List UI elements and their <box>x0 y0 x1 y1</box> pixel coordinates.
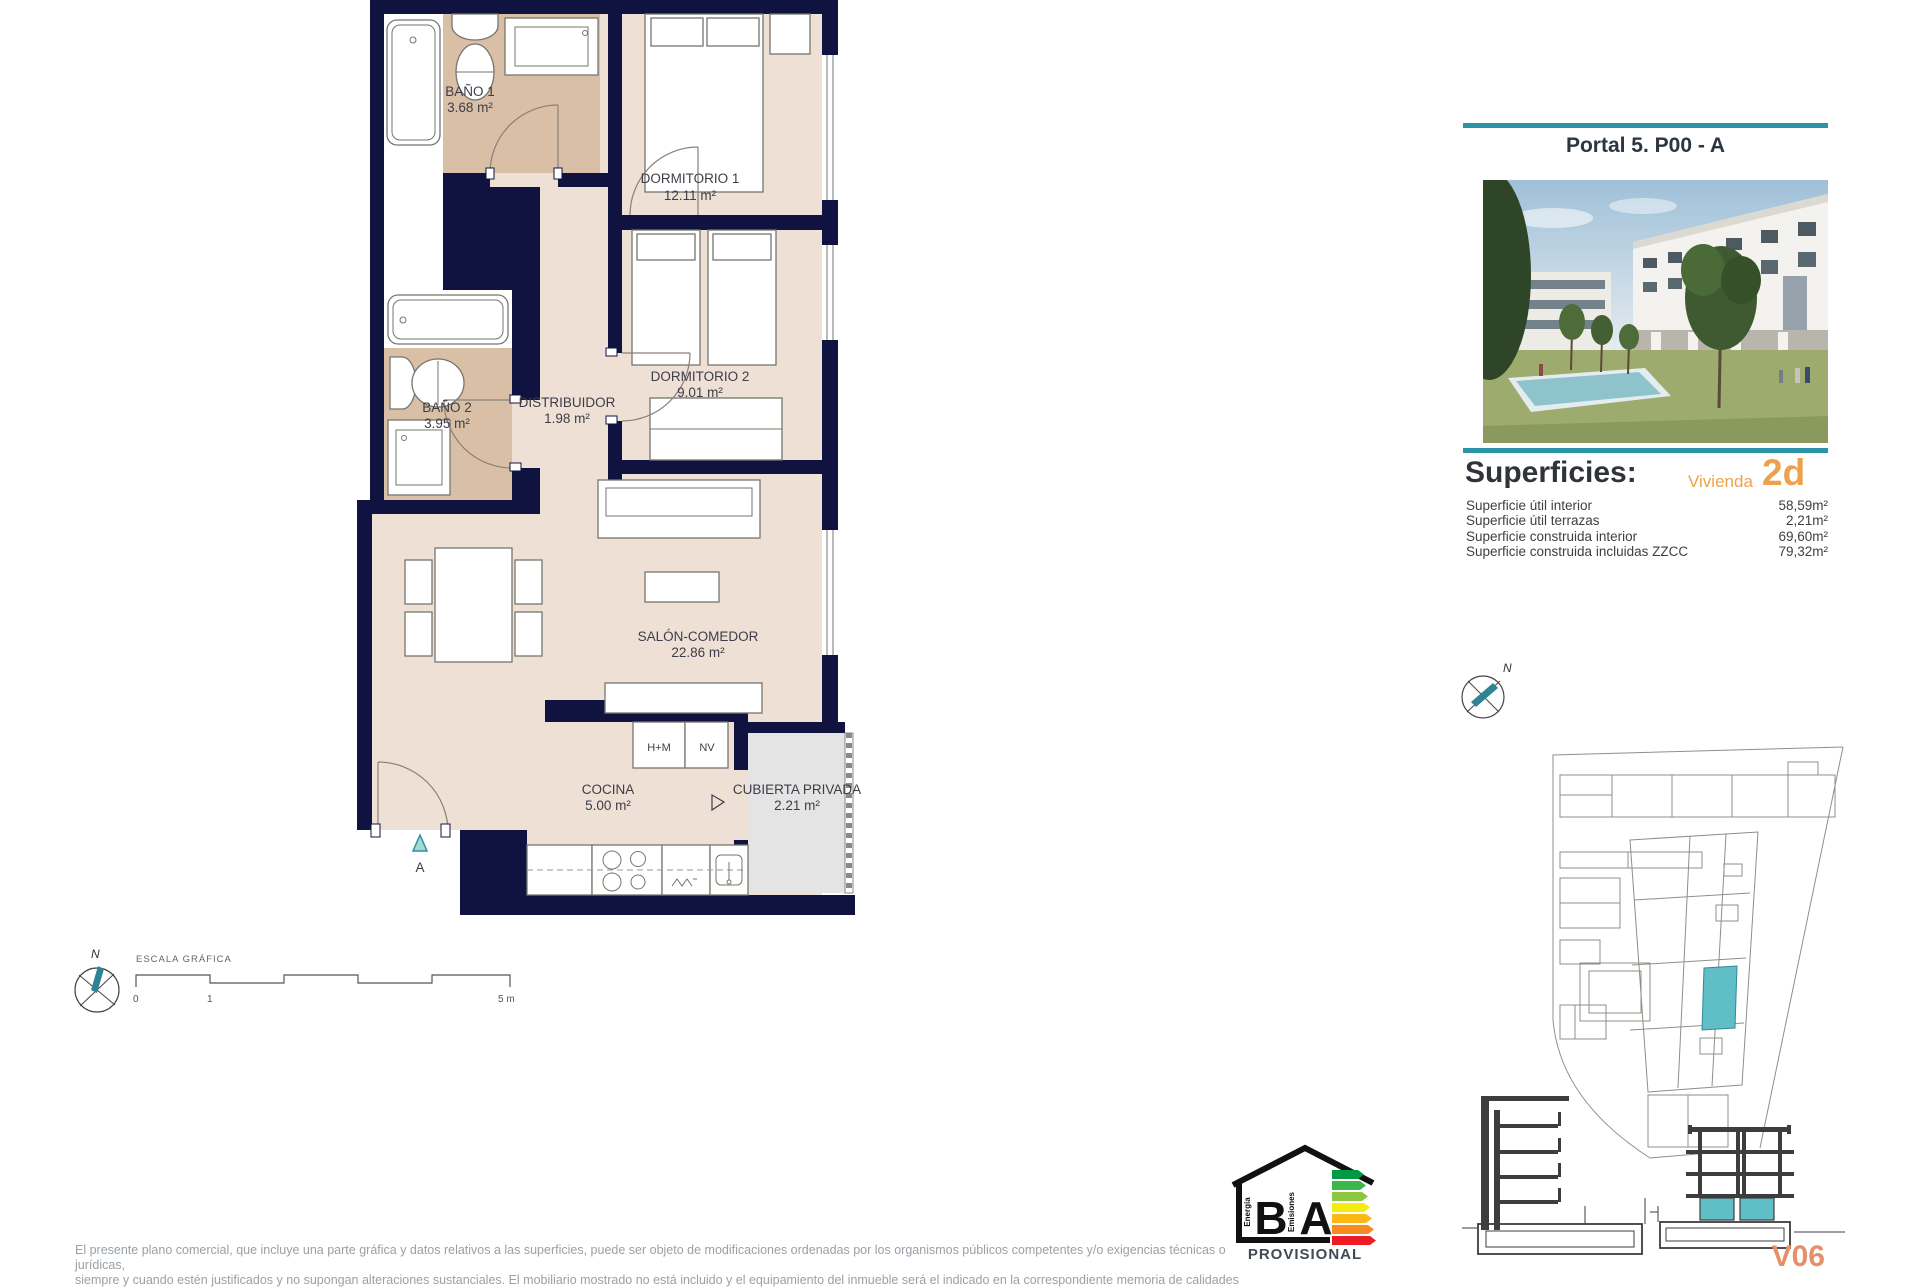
scale-bar <box>136 975 510 987</box>
superficies-row-value: 58,59m² <box>1778 498 1828 514</box>
section-highlighted-floor <box>1700 1198 1734 1220</box>
site-plan: N <box>1455 640 1855 1160</box>
wall-bath2-right-a <box>512 290 540 400</box>
wall-bath1-bottom-b <box>558 173 608 187</box>
section-right <box>1650 1125 1845 1248</box>
disclaimer-line1: El presente plano comercial, que incluye… <box>75 1243 1245 1273</box>
scale-tick-0: 0 <box>133 994 139 1005</box>
nightstand-dorm1 <box>770 14 810 54</box>
room-label-terrace: CUBIERTA PRIVADA <box>733 782 861 797</box>
vivienda-code: 2d <box>1762 452 1805 494</box>
vivienda-label: Vivienda <box>1688 472 1753 492</box>
plan-sheet: { "plan": { "rooms": [ {"name": "BAÑO 1"… <box>0 0 1920 1280</box>
superficies-row-label: Superficie útil interior <box>1466 498 1592 514</box>
wall-bath1-bottom-a <box>443 173 490 187</box>
superficies-row-label: Superficie construida incluidas ZZCC <box>1466 544 1688 560</box>
teal-rule-top <box>1463 123 1828 128</box>
energy-left-caption: Energía <box>1243 1197 1252 1227</box>
window-salon <box>822 530 838 655</box>
room-area-dorm1: 12.11 m² <box>664 188 717 203</box>
compass-north-label: N <box>91 947 100 961</box>
superficies-row: Superficie útil interior 58,59m² <box>1466 498 1828 514</box>
superficies-title: Superficies: <box>1465 456 1637 490</box>
site-highlighted-unit <box>1702 966 1737 1030</box>
wall-core-block <box>443 187 540 290</box>
site-compass-north: N <box>1503 661 1512 675</box>
room-label-dorm2: DORMITORIO 2 <box>651 369 750 384</box>
room-label-hall: DISTRIBUIDOR <box>519 395 616 410</box>
sink-1 <box>505 18 598 75</box>
wall-left-lower <box>357 505 372 830</box>
wall-terrace-top <box>748 722 845 733</box>
room-label-cocina: COCINA <box>582 782 635 797</box>
unit-label-nv: NV <box>699 742 715 754</box>
sofa <box>598 480 760 538</box>
room-label-dorm1: DORMITORIO 1 <box>641 171 740 186</box>
wall-top <box>372 0 838 14</box>
room-label-bath1: BAÑO 1 <box>445 84 495 99</box>
superficies-row-value: 2,21m² <box>1786 513 1828 529</box>
tv-sideboard <box>605 683 762 713</box>
room-area-dorm2: 9.01 m² <box>677 385 723 400</box>
disclaimer: El presente plano comercial, que incluye… <box>75 1243 1245 1288</box>
room-label-salon: SALÓN-COMEDOR <box>638 629 759 644</box>
version-code: V06 <box>1700 1240 1825 1274</box>
superficies-row-value: 79,32m² <box>1778 544 1828 560</box>
wall-dorm1-dorm2 <box>622 215 822 230</box>
room-area-bath2: 3.95 m² <box>424 416 470 431</box>
scale-tick-1: 1 <box>207 994 213 1005</box>
wall-bath2-bottom <box>357 500 540 514</box>
superficies-row: Superficie útil terrazas 2,21m² <box>1466 513 1828 529</box>
superficies-row-label: Superficie útil terrazas <box>1466 513 1600 529</box>
wall-terrace-left-a <box>734 722 748 770</box>
entrance-label: A <box>415 860 424 875</box>
scale-bar-title: ESCALA GRÁFICA <box>136 954 232 965</box>
kitchen-counter <box>527 845 748 895</box>
wall-hall-divider-a <box>608 14 622 353</box>
room-area-hall: 1.98 m² <box>544 411 590 426</box>
room-area-bath1: 3.68 m² <box>447 100 493 115</box>
room-area-terrace: 2.21 m² <box>774 798 820 813</box>
window-dorm1 <box>822 55 838 200</box>
scale-bar-group: ESCALA GRÁFICA 0 1 5 m N <box>60 940 580 1015</box>
disclaimer-line2: siempre y cuando estén justificados y no… <box>75 1273 1245 1288</box>
superficies-row-value: 69,60m² <box>1778 529 1828 545</box>
energy-right-caption: Emisiones <box>1287 1191 1296 1232</box>
wall-entry-block <box>460 830 527 915</box>
bed-dorm1 <box>645 14 763 192</box>
portal-title: Portal 5. P00 - A <box>1463 134 1828 158</box>
coffee-table <box>645 572 719 602</box>
compass-icon <box>75 966 119 1012</box>
bathtub-1 <box>387 20 440 145</box>
sink-2 <box>388 420 450 495</box>
room-area-cocina: 5.00 m² <box>585 798 631 813</box>
wall-dorm2-salon <box>622 460 822 474</box>
window-dorm2 <box>822 245 838 340</box>
floor-plan: A BAÑO 1 3.68 m² DORMITORIO 1 12.11 m² B… <box>350 0 870 920</box>
room-area-salon: 22.86 m² <box>671 645 725 660</box>
building-render <box>1483 180 1828 443</box>
superficies-row-label: Superficie construida interior <box>1466 529 1637 545</box>
energy-status: PROVISIONAL <box>1210 1246 1400 1263</box>
room-label-bath2: BAÑO 2 <box>422 400 472 415</box>
unit-label-hm: H+M <box>647 742 671 754</box>
wardrobe-dorm2 <box>650 398 782 460</box>
wall-left-upper <box>370 0 384 505</box>
site-compass-icon <box>1462 676 1504 718</box>
bathtub-2 <box>388 295 508 344</box>
superficies-row: Superficie construida interior 69,60m² <box>1466 529 1828 545</box>
superficies-row: Superficie construida incluidas ZZCC 79,… <box>1466 544 1828 560</box>
energy-letter-a: A <box>1299 1192 1332 1244</box>
scale-tick-5: 5 m <box>498 994 515 1005</box>
section-left <box>1462 1096 1645 1254</box>
terrace-floor <box>748 733 845 893</box>
energy-letter-b: B <box>1254 1192 1287 1244</box>
